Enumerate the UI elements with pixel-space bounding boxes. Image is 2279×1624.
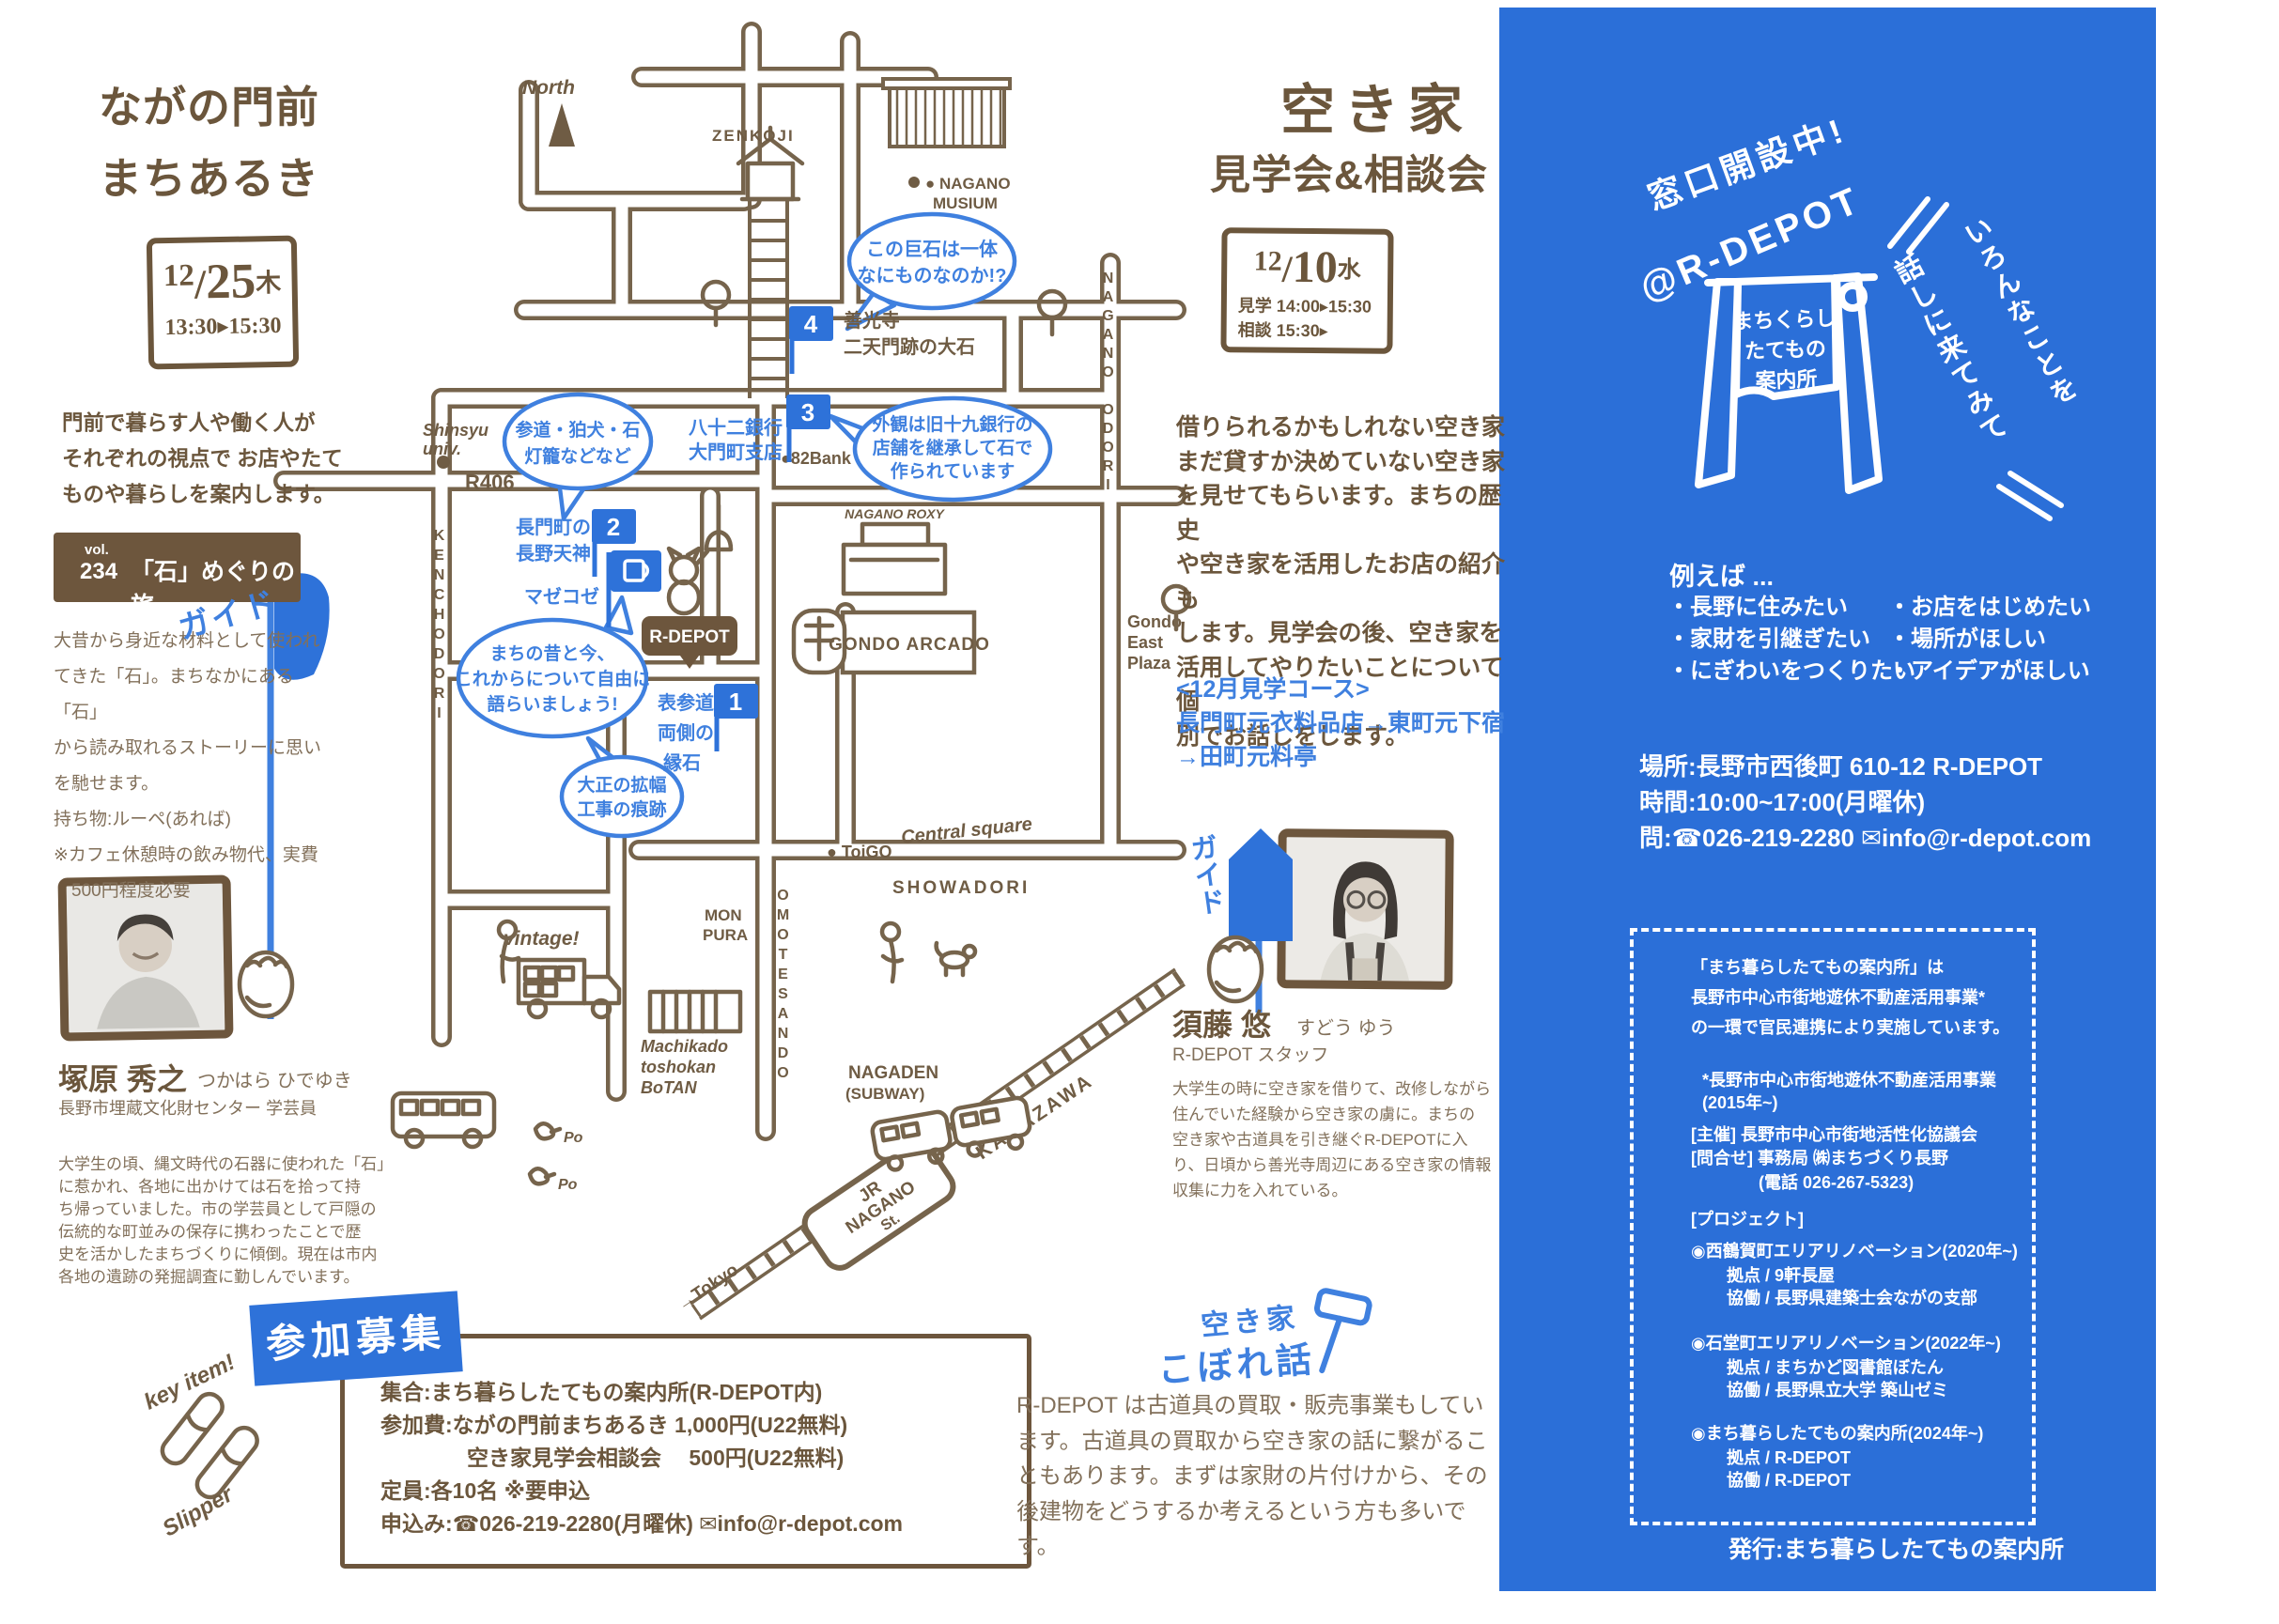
- svg-text:灯籠などなど: 灯籠などなど: [524, 445, 631, 467]
- bubble-talk: まちの昔と今、 これからについて自由に 語らいましょう!: [455, 597, 650, 736]
- project-1-title: ◉西鶴賀町エリアリノベーション(2020年~): [1691, 1238, 2018, 1262]
- tour-course: <12月見学コース> 長門町元衣料品店→東町元下宿 →田町元料亭: [1176, 673, 1514, 774]
- panel-contact: 問:☎026-219-2280 ✉info@r-depot.com: [1639, 819, 2091, 854]
- left-date-month: 12: [163, 259, 195, 294]
- svg-text:作られています: 作られています: [891, 460, 1015, 482]
- svg-text:まちくらし: まちくらし: [1732, 306, 1837, 333]
- left-intro: 門前で暮らす人や働く人が それぞれの視点で お店やたて ものや暮らしを案内します…: [62, 406, 344, 513]
- svg-text:North: North: [522, 77, 575, 99]
- gondo-east-label: Gondo: [1127, 612, 1182, 631]
- guide-bio-right: 大学生の時に空き家を借りて、改修しながら 住んでいた経験から空き家の虜に。まちの…: [1172, 1076, 1496, 1203]
- right-date-box: 12/10水 見学 14:00▸15:30 相談 15:30▸: [1220, 227, 1393, 354]
- svg-text:3: 3: [801, 398, 814, 426]
- right-date-weekday: 水: [1338, 256, 1361, 283]
- svg-text:案内所: 案内所: [1754, 367, 1818, 393]
- vintage-truck: [519, 960, 619, 1017]
- project-2-lines: 拠点 / まちかど図書館ぼたん 協働 / 長野県立大学 築山ゼミ: [1727, 1356, 1948, 1401]
- recruit-info-lines: 集合:まち暮らしたてもの案内所(R-DEPOT内) 参加費:ながの門前まちあるき…: [380, 1376, 1000, 1540]
- left-date-weekday: 木: [256, 269, 282, 297]
- shinsyu-univ-dot: [437, 456, 450, 469]
- nagano-museum: ● NAGANO MUSIUM: [883, 79, 1011, 212]
- left-date-box: 12/25木 13:30▸15:30: [147, 236, 299, 370]
- right-date-month: 12: [1254, 246, 1282, 277]
- street-omotesando: OMOTESANDO: [774, 888, 791, 1085]
- road-network: [284, 32, 1176, 1131]
- svg-text:参道・狛犬・石: 参道・狛犬・石: [515, 419, 640, 441]
- spot2-label2: 長野天神: [516, 542, 591, 565]
- gondo-east-label3: Plaza: [1127, 654, 1171, 673]
- svg-text:この巨石は一体: この巨石は一体: [866, 238, 999, 260]
- svg-text:● NAGANO: ● NAGANO: [925, 175, 1011, 193]
- project-3-title: ◉まち暮らしたてもの案内所(2024年~): [1691, 1420, 1983, 1445]
- panel-examples-left: ・長野に住みたい ・家財を引継ぎたい ・にぎわいをつくりたい: [1667, 592, 1915, 688]
- svg-text:なにものなのか!?: なにものなのか!?: [858, 265, 1007, 286]
- guide-name-right: 須藤 悠: [1172, 1001, 1271, 1044]
- panel-box-inquiry: [問合せ] 事務局 ㈱まちづくり長野 (電話 026-267-5323): [1691, 1146, 1948, 1195]
- panel-publisher: 発行:まち暮らしたてもの案内所: [1729, 1531, 2064, 1565]
- svg-text:MUSIUM: MUSIUM: [933, 194, 998, 212]
- svg-text:たてもの: たてもの: [1744, 336, 1827, 363]
- kobore-text: R-DEPOT は古道具の買取・販売事業もしてい ます。古道具の買取から空き家の…: [1016, 1388, 1491, 1565]
- guide-title-left: 長野市埋蔵文化財センター 学芸員: [58, 1095, 317, 1120]
- project-1-lines: 拠点 / 9軒長屋 協働 / 長野県建築士会ながの支部: [1727, 1264, 1977, 1309]
- svg-text:まちの昔と今、: まちの昔と今、: [489, 642, 614, 664]
- panel-box-p1: 「まち暮らしたてもの案内所」は 長野市中心市街地遊休不動産活用事業* の一環で官…: [1691, 952, 2009, 1043]
- spot3-label2: 大門町支店: [689, 441, 783, 463]
- left-date-time: 13:30▸15:30: [153, 311, 293, 342]
- mon-pura-label: MON: [705, 906, 742, 924]
- vol-number: 234: [80, 559, 117, 585]
- nagaden-label2: (SUBWAY): [845, 1085, 924, 1103]
- guide-title-right: R-DEPOT スタッフ: [1172, 1041, 1328, 1066]
- svg-text:店舗を継承して石で: 店舗を継承して石で: [873, 437, 1032, 458]
- svg-text:NAGANO ROXY: NAGANO ROXY: [845, 506, 945, 521]
- guide-bio-left: 大学生の頃、縄文時代の石器に使われた「石」 に惹かれ、各地に出かけては石を拾って…: [58, 1153, 406, 1289]
- panel-place: 場所:長野市西後町 610-12 R-DEPOT: [1639, 748, 2042, 782]
- project-2-title: ◉石堂町エリアリノベーション(2022年~): [1691, 1330, 2001, 1354]
- bubble-bank-facade: 外観は旧十九銀行の 店舗を継承して石で 作られています: [830, 398, 1050, 500]
- gondo-east-label2: East: [1127, 633, 1163, 652]
- nagano-roxy-building: NAGANO ROXY: [844, 506, 946, 594]
- machikado-label2: toshokan: [641, 1058, 716, 1076]
- right-title-line2: 見学会&相談会: [1210, 143, 1488, 201]
- left-title-line2: まちあるき: [99, 145, 319, 207]
- recruit-badge: 参加募集: [249, 1291, 462, 1385]
- panel-box-project-label: [プロジェクト]: [1691, 1206, 1804, 1230]
- right-title-line1: 空き家: [1280, 66, 1472, 145]
- svg-text:工事の痕跡: 工事の痕跡: [577, 798, 666, 820]
- slipper-icon: [158, 1389, 262, 1502]
- spot2-label: 長門町の: [516, 517, 591, 538]
- spot3-label: 八十二銀行: [689, 416, 783, 439]
- left-title-line1: ながの門前: [99, 73, 319, 135]
- popo-label2: Po: [558, 1177, 578, 1193]
- bus: [393, 1093, 494, 1147]
- machikado-library: [650, 992, 740, 1031]
- birds: [530, 1123, 560, 1183]
- panel-hours: 時間:10:00~17:00(月曜休): [1639, 783, 1925, 818]
- svg-text:語らいましょう!: 語らいましょう!: [487, 693, 617, 715]
- shinsyu-univ-label: Shinsyu: [423, 421, 488, 440]
- panel-box-host: [主催] 長野市中心市街地活性化協議会: [1691, 1121, 1977, 1146]
- panel-box-note: *長野市中心市街地遊休不動産活用事業 (2015年~): [1702, 1069, 1996, 1114]
- svg-text:大正の拡幅: 大正の拡幅: [577, 774, 666, 796]
- street-kenchodori: KENCHODORI: [430, 528, 447, 725]
- svg-text:4: 4: [804, 310, 818, 338]
- mon-pura-label2: PURA: [703, 926, 748, 944]
- guide-kana-right: すどう ゆう: [1296, 1013, 1396, 1040]
- r406-label: R406: [465, 471, 515, 494]
- guide-name-left: 塚原 秀之: [58, 1056, 187, 1099]
- svg-text:2: 2: [607, 513, 620, 541]
- spot4-label2: 二天門跡の大石: [844, 335, 975, 358]
- shinsyu-univ-label2: univ.: [423, 440, 461, 458]
- svg-text:GONDO ARCADO: GONDO ARCADO: [829, 635, 990, 655]
- zenkoji-approach: [750, 201, 787, 398]
- spot4-label: 善光寺: [844, 309, 900, 332]
- zenkoji-label: ZENKOJI: [712, 127, 795, 145]
- gondo-arcade: GONDO ARCADO: [794, 611, 990, 673]
- left-body: 大昔から身近な材料として使われ てきた「石」。まちなかにある「石」 から読み取れ…: [54, 624, 335, 909]
- spot1-label3: 縁石: [663, 751, 701, 774]
- project-3-lines: 拠点 / R-DEPOT 協働 / R-DEPOT: [1727, 1446, 1851, 1492]
- signboard-text: まちくらし たてもの 案内所: [1732, 306, 1838, 394]
- popo-label: Po: [564, 1130, 583, 1146]
- bubble-sando: 参道・狛犬・石 灯籠などなど: [504, 394, 651, 518]
- guide-kana-left: つかはら ひでゆき: [197, 1065, 352, 1092]
- right-date-line1: 見学 14:00▸15:30: [1227, 292, 1388, 317]
- svg-text:R-DEPOT: R-DEPOT: [649, 627, 730, 647]
- spot1-label2: 両側の: [658, 722, 714, 744]
- left-date-day: 25: [206, 254, 256, 309]
- nagaden-label: NAGADEN: [848, 1063, 938, 1083]
- flyer-page: JR NAGANO St. KANAZAWA →Tokyo North ZENK…: [0, 0, 2279, 1624]
- kobore-title-line2: こぼれ話: [1155, 1330, 1316, 1393]
- svg-text:これからについて自由に: これからについて自由に: [455, 668, 650, 689]
- map-marker-4: 4: [789, 306, 833, 374]
- machikado-label: Machikado: [641, 1037, 728, 1056]
- street-nagano-odori: NAGANO ODORI: [1099, 271, 1116, 496]
- machikado-label3: BoTAN: [641, 1078, 698, 1097]
- svg-text:外観は旧十九銀行の: 外観は旧十九銀行の: [872, 413, 1032, 435]
- panel-example-label: 例えば ...: [1669, 556, 1774, 593]
- map-marker-1: 1: [714, 684, 758, 751]
- right-date-line2: 相談 15:30▸: [1227, 317, 1388, 342]
- panel-examples-right: ・お店をはじめたい ・場所がほしい ・アイデアがほしい: [1888, 592, 2091, 688]
- svg-text:1: 1: [729, 688, 742, 716]
- mazekoze-label: マゼコゼ: [524, 585, 599, 608]
- vol-label: vol.: [85, 542, 109, 558]
- toigo-label: ● ToiGO: [827, 843, 892, 861]
- spot1-label: 表参道: [658, 691, 714, 714]
- showadori-label: SHOWADORI: [892, 878, 1030, 898]
- right-date-day: 10: [1293, 242, 1338, 292]
